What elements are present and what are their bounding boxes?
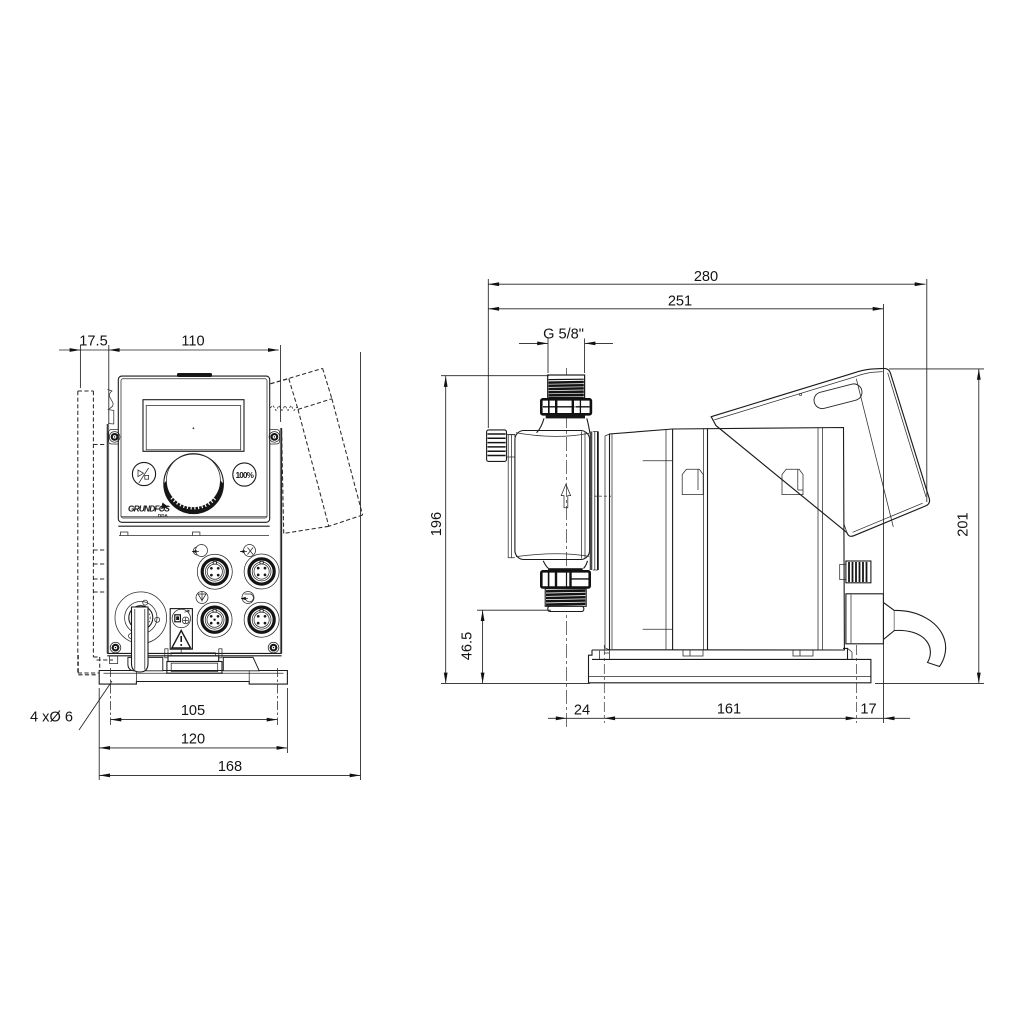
svg-text:168: 168 <box>218 759 242 775</box>
svg-text:4 xØ 6: 4 xØ 6 <box>30 710 73 726</box>
svg-text:251: 251 <box>668 294 692 310</box>
svg-text:24: 24 <box>574 703 590 719</box>
svg-text:G 5/8": G 5/8" <box>543 327 584 343</box>
svg-text:110: 110 <box>181 334 204 350</box>
svg-text:120: 120 <box>181 732 205 748</box>
svg-text:46.5: 46.5 <box>460 632 476 660</box>
svg-text:100%: 100% <box>236 471 254 480</box>
svg-text:17.5: 17.5 <box>79 334 107 350</box>
svg-text:201: 201 <box>955 512 971 536</box>
svg-text:DDA: DDA <box>158 513 168 518</box>
svg-text:161: 161 <box>717 702 741 718</box>
svg-text:105: 105 <box>181 703 205 719</box>
svg-text:17: 17 <box>860 702 876 718</box>
svg-text:196: 196 <box>429 512 445 536</box>
svg-text:280: 280 <box>694 269 718 285</box>
